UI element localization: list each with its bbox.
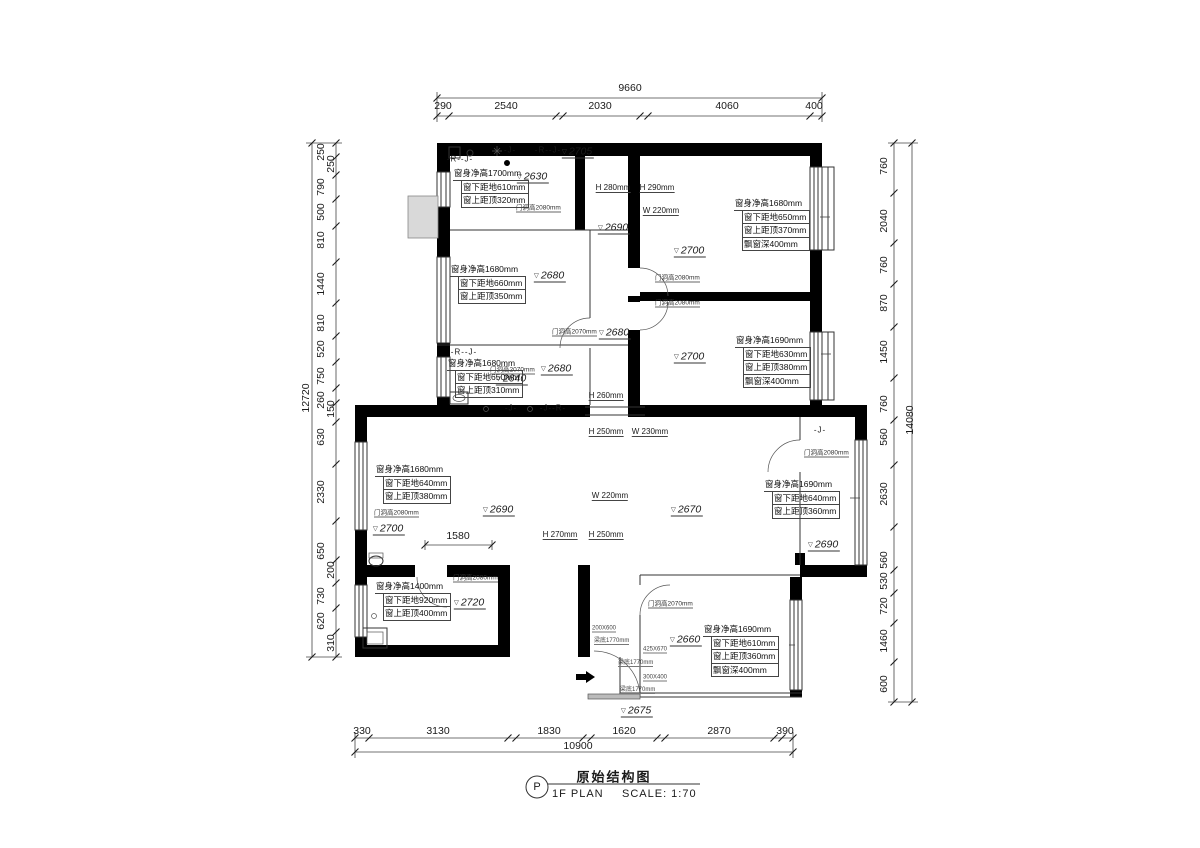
plan-bubble [526,776,548,798]
floor-plan-drawing [0,0,1200,848]
entry-arrow-icon [576,671,595,683]
title-block [526,776,700,798]
dimension-lines [306,92,918,758]
cabinet [408,196,438,238]
toilet [369,556,383,566]
floor-plan-page: P 原始结构图 1F PLAN SCALE: 1:70 966029025402… [0,0,1200,848]
dot-symbol [504,160,510,166]
entry-door-leaf [588,694,640,699]
door-swings [417,268,800,697]
window-symbols [355,167,867,690]
